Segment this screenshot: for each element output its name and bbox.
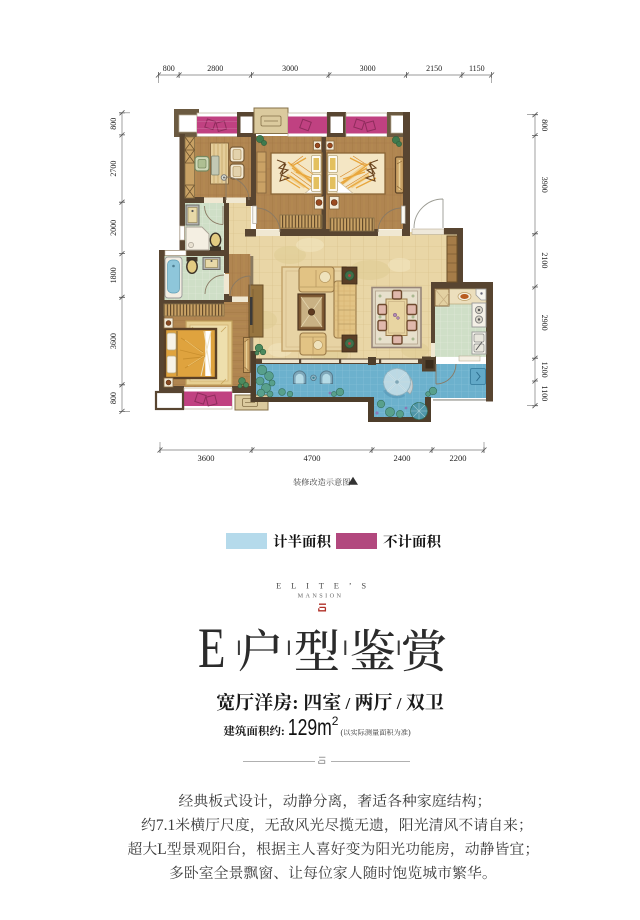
- svg-text:3600: 3600: [198, 453, 215, 463]
- svg-text:L: L: [157, 841, 166, 858]
- svg-text:/: /: [393, 694, 406, 713]
- svg-text:/: /: [341, 694, 354, 713]
- svg-text::: :: [292, 693, 303, 714]
- svg-text:800: 800: [163, 64, 175, 73]
- svg-text:): ): [408, 728, 411, 737]
- svg-text:800: 800: [540, 119, 549, 131]
- svg-text:2400: 2400: [394, 453, 411, 463]
- svg-text:800: 800: [109, 118, 118, 130]
- svg-text:2800: 2800: [207, 64, 223, 73]
- svg-text:3600: 3600: [109, 333, 118, 349]
- svg-text:3900: 3900: [540, 177, 549, 193]
- svg-text:2900: 2900: [540, 315, 549, 331]
- svg-text:4700: 4700: [304, 453, 321, 463]
- svg-text:1800: 1800: [109, 267, 118, 283]
- svg-text:1200: 1200: [540, 362, 549, 378]
- svg-text:7.1: 7.1: [156, 817, 175, 834]
- svg-text:(: (: [339, 728, 344, 737]
- svg-text:2700: 2700: [109, 161, 118, 177]
- svg-text:800: 800: [109, 392, 118, 404]
- svg-text:MANSION: MANSION: [298, 593, 344, 600]
- svg-text:1150: 1150: [469, 64, 485, 73]
- svg-text:1100: 1100: [540, 386, 549, 402]
- svg-text:2100: 2100: [540, 252, 549, 268]
- svg-text:2: 2: [332, 714, 339, 728]
- svg-text:2000: 2000: [109, 220, 118, 236]
- svg-text:3000: 3000: [282, 64, 298, 73]
- svg-text:129m: 129m: [288, 714, 332, 740]
- svg-text:2150: 2150: [426, 64, 442, 73]
- svg-text:2200: 2200: [450, 453, 467, 463]
- svg-text:3000: 3000: [360, 64, 376, 73]
- svg-text:E: E: [198, 617, 226, 680]
- svg-text:ELITE’S: ELITE’S: [276, 581, 376, 591]
